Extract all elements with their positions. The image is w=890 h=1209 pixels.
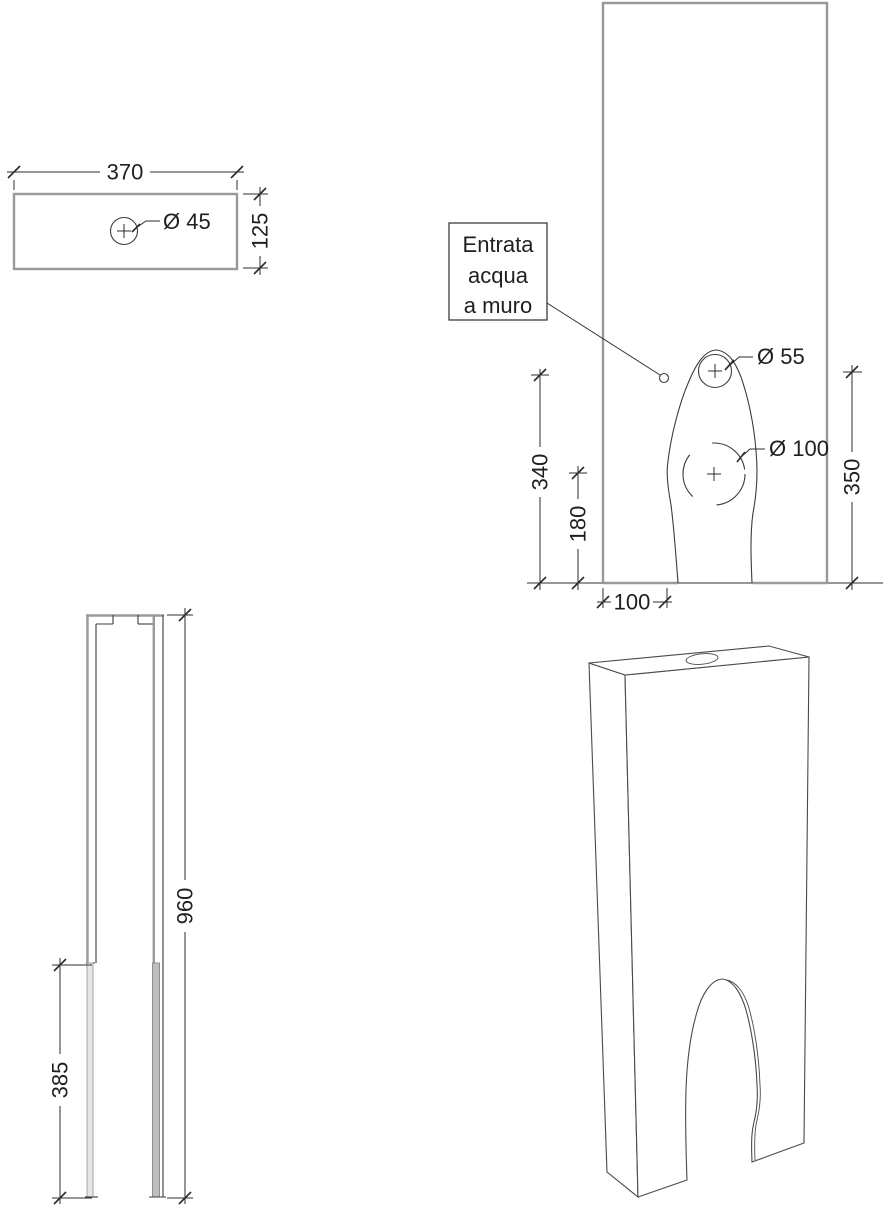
dim-125-label: 125	[248, 213, 273, 250]
note-line-1: Entrata	[463, 232, 535, 257]
dim-hole45-label: Ø 45	[163, 209, 211, 234]
leader-dot	[660, 374, 669, 383]
top-view: Ø 45 370 125	[7, 160, 273, 275]
front-view: Ø 55 Ø 100 Entrata acqua a muro 340	[449, 3, 883, 615]
iso-view	[589, 646, 809, 1197]
side-view: 960 385	[48, 608, 198, 1204]
technical-drawing-canvas: Ø 45 370 125	[0, 0, 890, 1209]
note-line-2: acqua	[468, 263, 529, 288]
dim-960-label: 960	[173, 888, 198, 925]
technical-drawing-page: Ø 45 370 125	[0, 0, 890, 1209]
dim-370-label: 370	[107, 160, 144, 185]
dim-100-label: 100	[614, 590, 651, 615]
dim-hole55-label: Ø 55	[757, 344, 805, 369]
dim-hole100-label: Ø 100	[769, 436, 829, 461]
side-view-front-wall-lower	[87, 963, 93, 1197]
side-view-back-wall-lower	[153, 963, 160, 1197]
iso-front-face	[625, 657, 809, 1197]
note-line-3: a muro	[464, 293, 532, 318]
dim-340-label: 340	[528, 454, 553, 491]
dim-350-label: 350	[840, 459, 865, 496]
dim-385-label: 385	[48, 1062, 73, 1099]
dim-180-label: 180	[566, 506, 591, 543]
